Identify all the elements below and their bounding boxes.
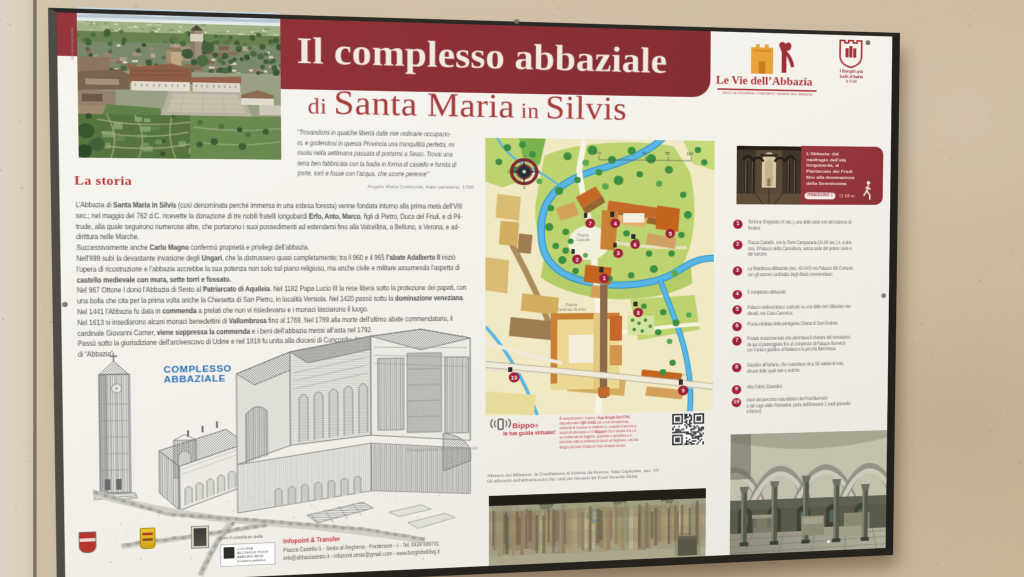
svg-text:4: 4 <box>614 221 618 227</box>
svg-text:1: 1 <box>603 276 607 282</box>
svg-text:7: 7 <box>589 221 593 227</box>
svg-text:6: 6 <box>634 242 638 248</box>
svg-text:8: 8 <box>637 310 641 316</box>
svg-text:2: 2 <box>576 257 580 263</box>
svg-text:5: 5 <box>669 231 673 237</box>
svg-text:3: 3 <box>617 251 621 257</box>
svg-text:9: 9 <box>682 388 686 394</box>
svg-text:10: 10 <box>511 375 518 381</box>
